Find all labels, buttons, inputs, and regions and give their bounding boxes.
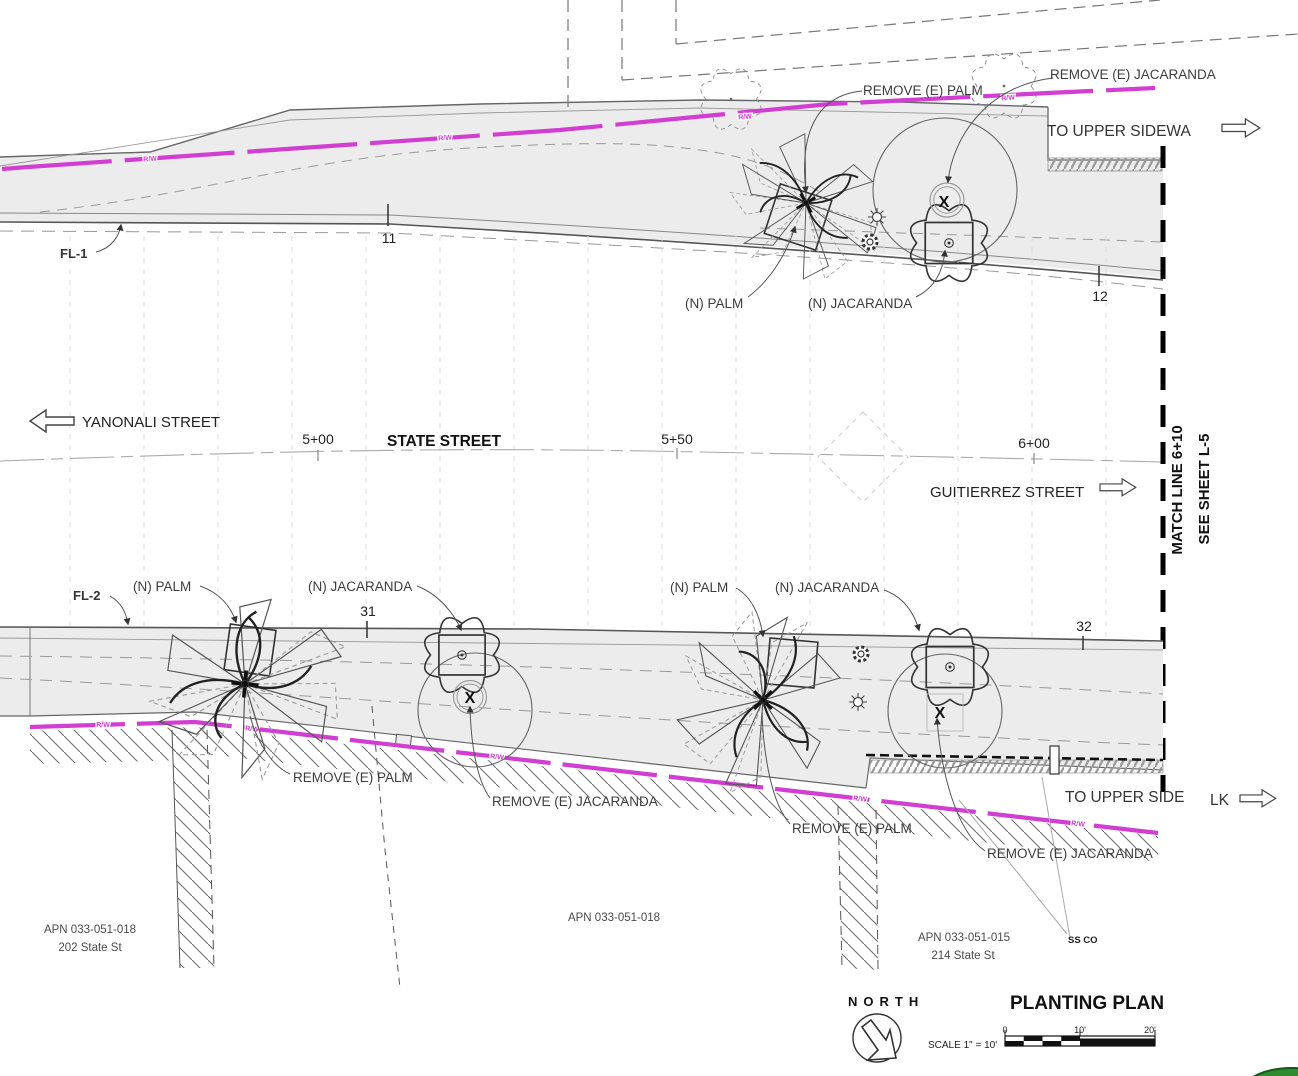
rw-label: R/W (438, 135, 452, 143)
station-label-11: 11 (382, 230, 397, 246)
to-upper-sidewalk-note-bottom: TO UPPER SIDE (1065, 789, 1184, 806)
apn-center: APN 033-051-018 (568, 912, 660, 924)
lower-step-hatch (870, 760, 1163, 773)
flowline-label-fl1: FL-1 (60, 246, 87, 261)
new-palm-label-top: (N) PALM (685, 296, 743, 311)
utility-box (1050, 746, 1059, 774)
remove-palm-label-1: REMOVE (E) PALM (293, 770, 413, 785)
sheet-title: PLANTING PLAN (1010, 993, 1164, 1014)
remove-jacaranda-label-top: REMOVE (E) JACARANDA (1050, 67, 1216, 82)
right-arrow-icon (1100, 479, 1136, 496)
remove-jacaranda-label-2: REMOVE (E) JACARANDA (987, 846, 1153, 861)
upper-step-hatch (1048, 158, 1162, 171)
station-5-50: 5+50 (661, 431, 693, 447)
landscape-green-shape (1244, 1068, 1298, 1076)
direction-arrow-icon (1240, 790, 1276, 807)
to-upper-sidewalk-note-top: TO UPPER SIDEWA (1047, 123, 1191, 140)
new-palm-label-2: (N) PALM (670, 580, 728, 595)
match-line: MATCH LINE 6+10 SEE SHEET L-5 (1163, 146, 1213, 792)
station-label-31: 31 (360, 603, 376, 619)
see-sheet-label: SEE SHEET L-5 (1196, 434, 1213, 545)
rw-label: R/W (738, 114, 752, 122)
new-jacaranda-label-top: (N) JACARANDA (808, 296, 912, 311)
remove-palm-label-2: REMOVE (E) PALM (792, 821, 912, 836)
lk-note: LK (1210, 792, 1230, 809)
guitierrez-street-callout: GUITIERREZ STREET (930, 479, 1136, 501)
rw-label: R/W (1001, 95, 1015, 103)
guitierrez-street-label: GUITIERREZ STREET (930, 484, 1084, 501)
plan-drawing: R/W R/W R/W R/W X REMOVE (E) PALM REMOVE… (0, 0, 1298, 1076)
station-5-00: 5+00 (302, 431, 334, 447)
new-jacaranda-label-1: (N) JACARANDA (308, 579, 412, 594)
intersection-diamond (818, 412, 908, 502)
rw-label: R/W (143, 156, 157, 164)
match-line-label: MATCH LINE 6+10 (1169, 425, 1186, 554)
light-symbol (849, 693, 867, 711)
scale-bar: 0 10' 20' (1002, 1025, 1156, 1046)
planting-plan-sheet: R/W R/W R/W R/W X REMOVE (E) PALM REMOVE… (0, 0, 1298, 1076)
apn-left-line2: 202 State St (58, 942, 122, 954)
ss-co-label: SS CO (1068, 935, 1098, 946)
apn-right-line2: 214 State St (931, 950, 995, 962)
state-street-label: STATE STREET (387, 433, 501, 450)
station-label-12: 12 (1092, 288, 1108, 304)
station-label-32: 32 (1076, 618, 1092, 634)
remove-x: X (935, 705, 946, 722)
yanonali-street-label: YANONALI STREET (82, 414, 220, 431)
scale-note: SCALE 1" = 10' (928, 1040, 997, 1051)
new-palm-label-1: (N) PALM (133, 579, 191, 594)
title-block: NORTH SCALE 1" = 10' PLANTING PLAN 0 10'… (848, 993, 1164, 1062)
direction-arrow-icon (1222, 119, 1260, 137)
scale-tick-20: 20' (1144, 1025, 1156, 1035)
light-symbol (868, 208, 886, 226)
remove-x: X (939, 194, 950, 211)
flowline-label-fl2: FL-2 (73, 588, 100, 603)
north-label: NORTH (848, 994, 924, 1009)
utility-symbol (863, 235, 877, 249)
apn-right-line1: APN 033-051-015 (918, 932, 1010, 944)
new-jacaranda-label-2: (N) JACARANDA (775, 580, 879, 595)
left-arrow-icon (30, 410, 74, 432)
remove-jacaranda-label-1: REMOVE (E) JACARANDA (492, 794, 658, 809)
apn-left-line1: APN 033-051-018 (44, 924, 136, 936)
yanonali-street-callout: YANONALI STREET (30, 410, 220, 432)
north-arrow-icon (853, 1014, 901, 1062)
remove-palm-label-top: REMOVE (E) PALM (863, 83, 983, 98)
station-6-00: 6+00 (1018, 435, 1050, 451)
remove-x: X (465, 690, 476, 707)
rw-label: R/W (245, 725, 260, 734)
utility-symbol (854, 647, 868, 661)
rw-label: R/W (96, 722, 110, 729)
